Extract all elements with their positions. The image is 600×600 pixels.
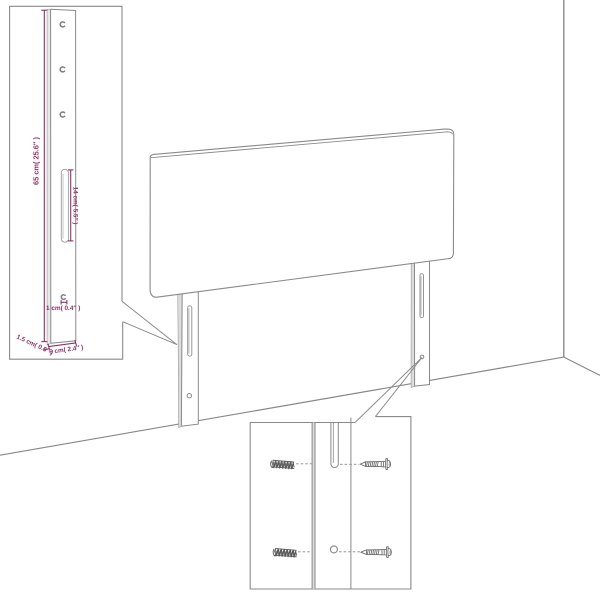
svg-text:1 cm( 0.4″ ): 1 cm( 0.4″ ) (46, 305, 80, 312)
svg-text:65 cm( 25.6″ ): 65 cm( 25.6″ ) (32, 137, 41, 185)
svg-text:14 cm( 5.5″ ): 14 cm( 5.5″ ) (71, 187, 78, 225)
